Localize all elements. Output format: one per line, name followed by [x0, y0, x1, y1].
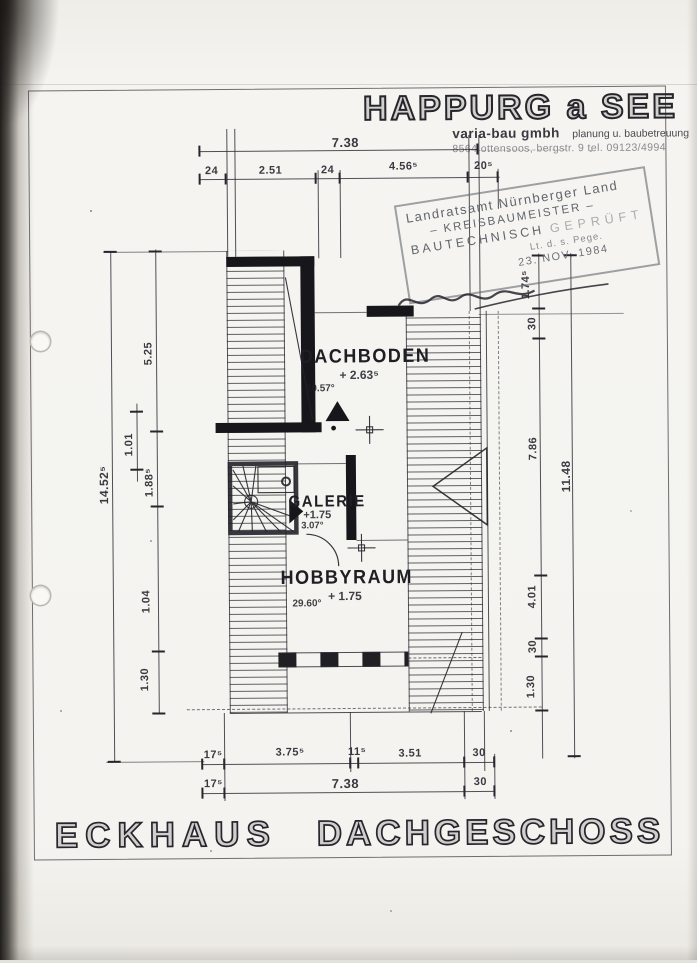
dim-tick — [535, 655, 548, 657]
dim-label-top-total: 7.38 — [332, 136, 359, 149]
dim-label-left-outer: 14.52⁵ — [98, 466, 110, 505]
dim-label: 5.25 — [143, 342, 154, 366]
dim-label: 30 — [474, 777, 487, 788]
dim-tick — [130, 469, 143, 471]
dim-label: 20⁵ — [474, 161, 493, 172]
dim-tick — [315, 173, 317, 184]
room-level-dachboden: + 2.63⁵ — [339, 368, 378, 382]
room-name-dachboden: DACHBODEN — [300, 345, 431, 369]
dim-tick — [568, 755, 581, 757]
drawing-content: HAPPURG a SEE varia-bau gmbh planung u. … — [0, 0, 697, 963]
dim-tick — [357, 757, 359, 768]
dim-tick — [532, 307, 545, 309]
dim-label: 30 — [528, 640, 539, 653]
scan-corner-blotch — [0, 0, 60, 130]
footer-title-left: ECKHAUS — [55, 815, 277, 857]
dim-label: 7.38 — [332, 777, 359, 790]
dim-label: 17⁵ — [204, 750, 223, 761]
wall — [300, 256, 315, 432]
wall — [216, 422, 322, 433]
dim-label: 4.56⁵ — [389, 161, 418, 172]
dim-tick — [199, 174, 201, 185]
dim-tick — [152, 650, 165, 652]
firm-address: 8564 ottensoos, bergstr. 9 tel. 09123/49… — [452, 141, 666, 155]
room-angle-galerie: 3.07° — [301, 520, 323, 531]
firm-block: varia-bau gmbh planung u. baubetreuung — [452, 123, 689, 143]
roof-hatch-left — [226, 250, 288, 712]
dim-label: 1.04 — [141, 590, 152, 614]
dim-tick — [535, 709, 548, 711]
dim-tick — [198, 146, 200, 157]
dim-tick — [532, 337, 545, 339]
footer-title-right: DACHGESCHOSS — [317, 812, 665, 855]
scanned-floor-plan-page: HAPPURG a SEE varia-bau gmbh planung u. … — [0, 0, 697, 960]
dim-label: 17⁵ — [204, 779, 223, 790]
dim-label: 24 — [321, 165, 334, 176]
dim-label: 1.88⁵ — [144, 468, 155, 497]
dim-label: 1.30 — [526, 675, 537, 699]
dim-label: 3.75⁵ — [276, 747, 305, 758]
window-band — [278, 652, 408, 668]
dim-label: 1.01 — [124, 433, 135, 457]
dim-label: 24 — [205, 166, 218, 177]
dim-label: 30 — [527, 317, 538, 330]
dim-label: 2.51 — [259, 166, 283, 177]
dim-label: 1.30 — [140, 668, 151, 692]
dim-label: 7.86 — [528, 437, 539, 461]
dim-tick — [152, 712, 165, 714]
room-angle-dachboden: 30.57° — [306, 383, 335, 394]
plan-title: HAPPURG a SEE — [363, 87, 678, 128]
dim-tick — [130, 411, 143, 413]
firm-tagline: planung u. baubetreuung — [572, 127, 689, 140]
scan-edge-strip — [0, 0, 34, 960]
dim-label: 3.51 — [398, 748, 422, 759]
dim-label: 4.01 — [527, 585, 538, 609]
room-name-hobbyraum: HOBBYRAUM — [280, 566, 413, 590]
room-angle-hobbyraum: 29.60° — [292, 598, 321, 609]
room-level-hobbyraum: + 1.75 — [328, 589, 362, 603]
dim-label-right-outer: 11.48 — [560, 460, 572, 492]
wall — [367, 305, 414, 316]
wall — [226, 256, 314, 267]
punch-hole-top — [31, 332, 50, 351]
dim-tick — [150, 430, 163, 432]
dim-tick — [151, 505, 164, 507]
scan-noise — [90, 210, 92, 212]
punch-hole-bottom — [31, 586, 50, 605]
dim-tick — [534, 574, 547, 576]
